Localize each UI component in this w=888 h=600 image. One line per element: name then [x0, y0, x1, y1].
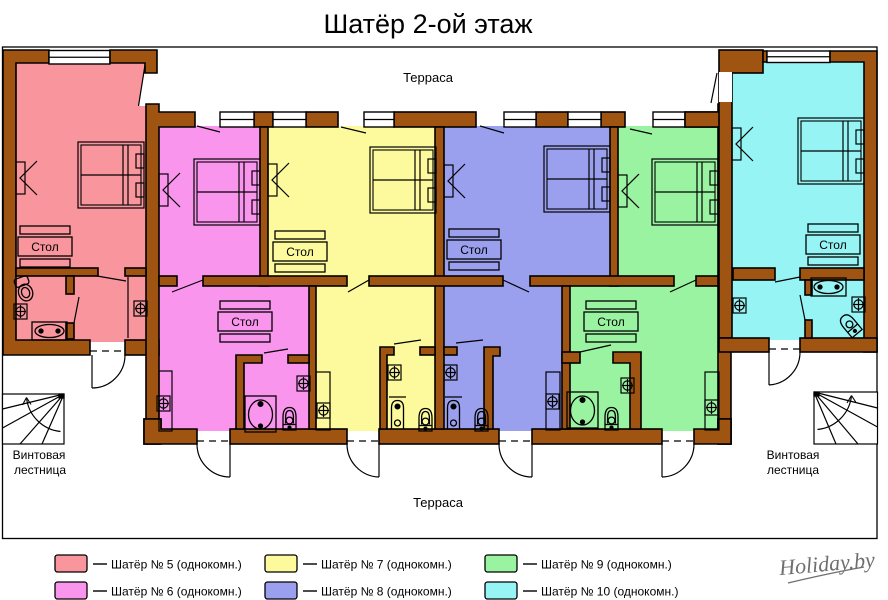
svg-text:лестница: лестница	[767, 463, 819, 477]
svg-text:Шатёр № 8 (однокомн.): Шатёр № 8 (однокомн.)	[321, 585, 452, 599]
svg-text:Шатёр № 5 (однокомн.): Шатёр № 5 (однокомн.)	[111, 558, 242, 572]
svg-text:Стол: Стол	[460, 243, 487, 257]
svg-text:лестница: лестница	[14, 463, 66, 477]
svg-text:Винтовая: Винтовая	[767, 448, 820, 462]
svg-text:Винтовая: Винтовая	[13, 448, 66, 462]
svg-text:Терраса: Терраса	[413, 495, 464, 510]
svg-text:Стол: Стол	[286, 245, 313, 259]
svg-text:Стол: Стол	[31, 240, 58, 254]
svg-text:Стол: Стол	[819, 238, 846, 252]
svg-text:Шатёр № 7 (однокомн.): Шатёр № 7 (однокомн.)	[321, 558, 452, 572]
svg-text:Шатёр № 9 (однокомн.): Шатёр № 9 (однокомн.)	[541, 558, 672, 572]
svg-text:Шатёр № 6 (однокомн.): Шатёр № 6 (однокомн.)	[111, 585, 242, 599]
svg-text:Стол: Стол	[231, 315, 258, 329]
svg-text:Стол: Стол	[597, 315, 624, 329]
svg-text:Терраса: Терраса	[403, 70, 454, 85]
svg-text:Holiday.by: Holiday.by	[777, 547, 876, 580]
svg-text:Шатёр № 10 (однокомн.): Шатёр № 10 (однокомн.)	[541, 585, 678, 599]
svg-text:Шатёр 2-ой этаж: Шатёр 2-ой этаж	[324, 9, 533, 39]
